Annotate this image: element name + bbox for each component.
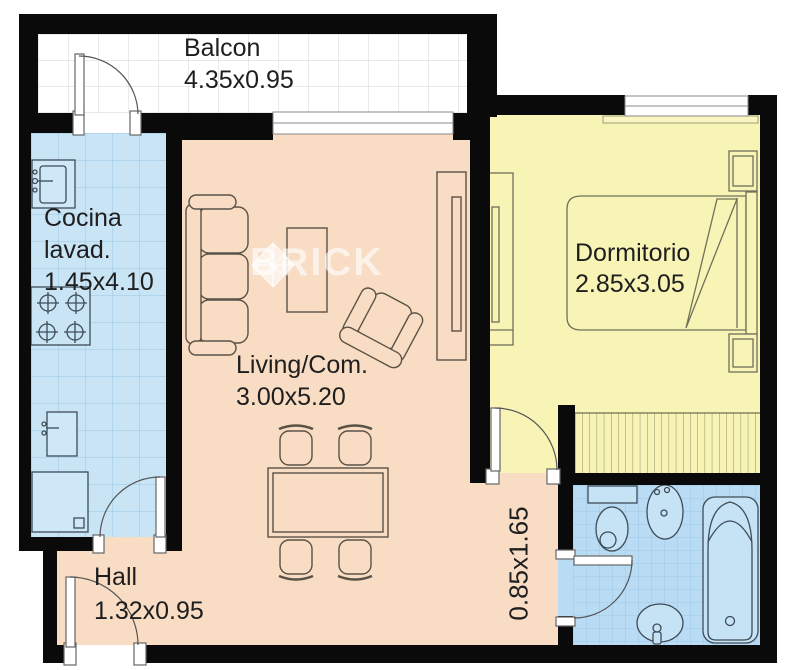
door-jamb: [547, 469, 560, 484]
wall-living-bedroom: [470, 115, 490, 483]
wall-bedroom-top: [497, 95, 625, 115]
coffee-table: [287, 228, 327, 312]
wall-living-top-right: [453, 113, 470, 140]
room-label-dormitorio: Dormitorio 2.85x3.05: [575, 238, 690, 300]
door-jamb: [130, 111, 141, 135]
floor-plan: Balcon 4.35x0.95 Cocina lavad. 1.45x4.10…: [0, 0, 788, 670]
wall-kitchen-balcony: [19, 113, 76, 133]
wall-living-top-left: [166, 113, 273, 140]
nightstand: [729, 334, 757, 372]
room-label-living: Living/Com. 3.00x5.20: [236, 349, 368, 413]
door-leaf: [156, 477, 165, 537]
living-balcony-window: [273, 112, 453, 134]
dining-table: [268, 468, 388, 537]
bed-headboard: [746, 192, 757, 334]
wall-kitchen-living: [166, 113, 182, 551]
room-dimensions: 4.35x0.95: [184, 64, 294, 96]
kitchen-sink: [32, 160, 75, 208]
room-label-balcon: Balcon 4.35x0.95: [184, 32, 294, 96]
bedroom-window: [625, 96, 748, 116]
room-name: Hall: [94, 560, 204, 594]
wall-top: [19, 14, 497, 34]
wall-closet-stub: [558, 405, 575, 473]
door-jamb: [556, 617, 575, 626]
room-label-cocina: Cocina lavad. 1.45x4.10: [44, 202, 154, 298]
bathroom-doorway-floor: [558, 552, 573, 616]
room-label-hall: Hall 1.32x0.95: [94, 560, 204, 628]
entrance-opening: [76, 645, 134, 663]
room-name: Balcon: [184, 32, 294, 64]
washing-machine: [32, 472, 88, 532]
tv-cabinet: [437, 172, 466, 360]
bathroom-shelf: [588, 486, 637, 503]
door-jamb: [154, 535, 166, 553]
wall-right: [760, 95, 777, 663]
room-name: Living/Com.: [236, 349, 368, 381]
room-name: Dormitorio: [575, 238, 690, 269]
closet-hatch: [575, 413, 760, 473]
room-dimensions: 1.32x0.95: [94, 594, 204, 628]
nightstand: [729, 151, 757, 191]
laundry-sink: [42, 412, 77, 456]
room-dimensions: 0.85x1.65: [504, 506, 534, 620]
room-name-line2: lavad.: [44, 234, 154, 266]
toilet: [596, 507, 628, 551]
bedroom-window-sill: [603, 116, 758, 123]
bathtub: [703, 497, 758, 643]
wall-bathroom-top: [558, 473, 760, 485]
wall-balcony-right: [467, 14, 497, 117]
sofa: [186, 195, 248, 355]
bidet: [647, 485, 683, 539]
door-leaf: [574, 556, 632, 565]
door-leaf: [491, 408, 500, 471]
room-name: Cocina: [44, 202, 154, 234]
wall-left-kitchen: [19, 133, 31, 551]
room-dimensions: 3.00x5.20: [236, 381, 368, 413]
wall-hall-left: [43, 537, 57, 663]
door-leaf: [66, 577, 75, 647]
door-jamb: [93, 535, 104, 553]
room-dimensions: 2.85x3.05: [575, 269, 690, 300]
door-leaf: [75, 54, 84, 115]
room-label-pasillo: 0.85x1.65: [504, 489, 535, 639]
wall-bathroom-left-upper: [558, 485, 573, 552]
door-jamb: [134, 643, 146, 665]
wardrobe: [486, 173, 513, 345]
door-jamb: [556, 550, 575, 559]
room-dimensions: 1.45x4.10: [44, 266, 154, 298]
wall-bottom: [43, 645, 777, 663]
